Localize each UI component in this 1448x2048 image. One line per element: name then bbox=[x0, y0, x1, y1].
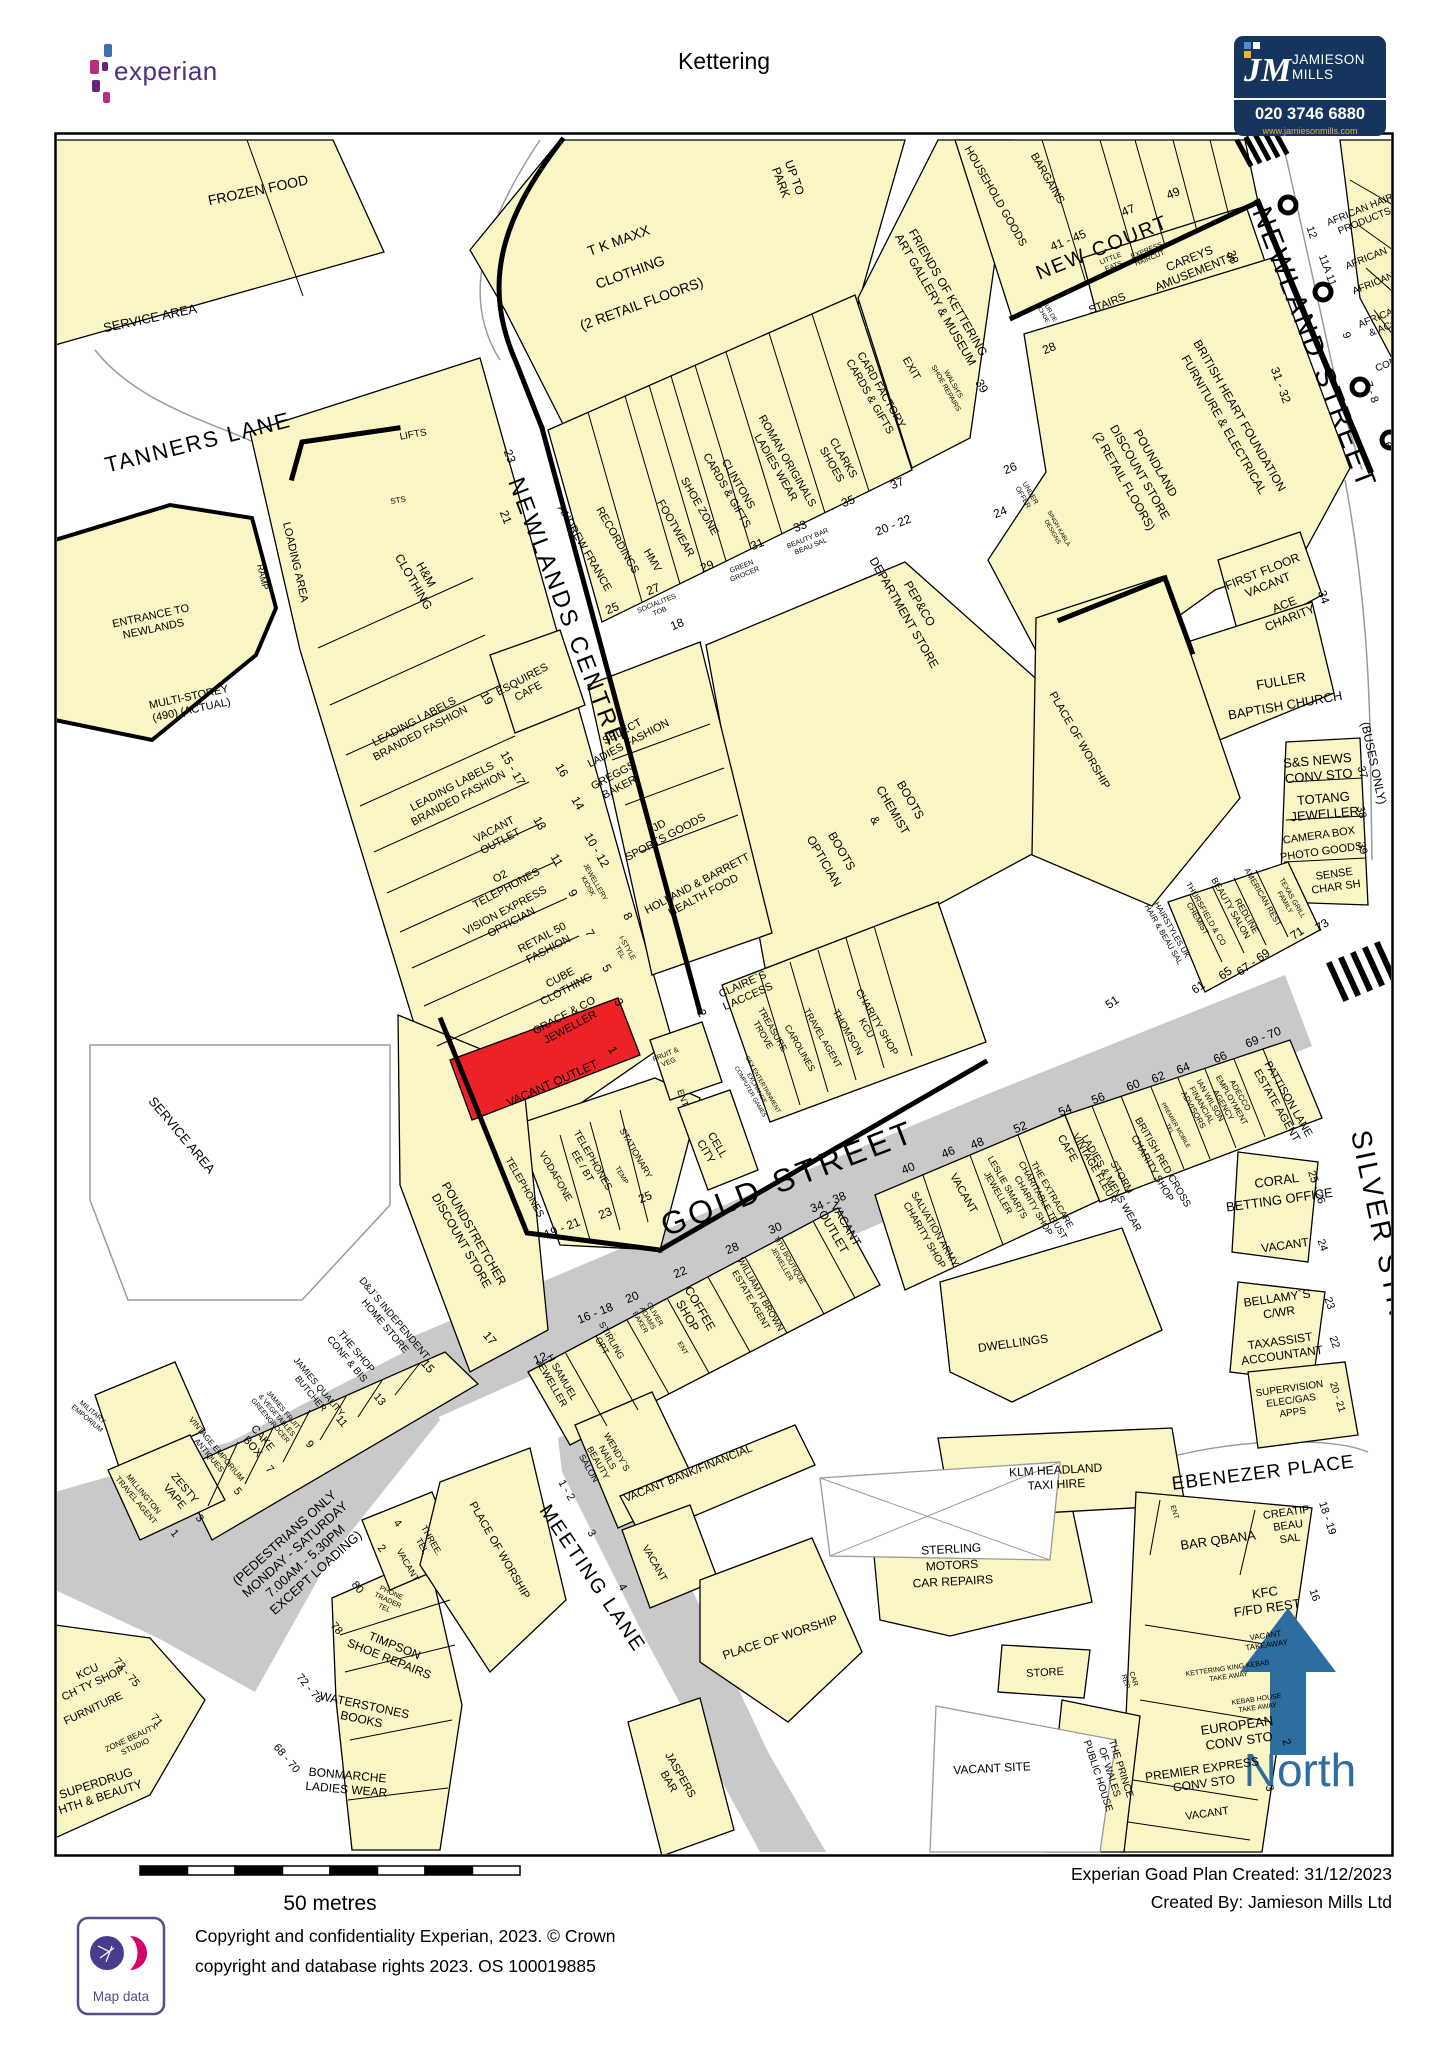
map-label-12: 12 bbox=[1303, 224, 1318, 240]
map-label-24: 24 bbox=[1315, 1238, 1330, 1253]
map-label-23: 23 bbox=[1322, 1296, 1337, 1311]
jamieson-mills-phone: 020 3746 6880 bbox=[1234, 105, 1386, 124]
map-label-green: GREENGROCER bbox=[726, 558, 760, 584]
created-by-label: Created By: Jamieson Mills Ltd bbox=[1151, 1892, 1392, 1912]
map-label-68-70: 68 - 70 bbox=[271, 1742, 302, 1776]
map-label-silver-street: SILVER STREET bbox=[1345, 1127, 1428, 1383]
copyright-line2: copyright and database rights 2023. OS 1… bbox=[195, 1956, 596, 1976]
jamieson-mills-name: JAMIESON MILLS bbox=[1292, 52, 1365, 82]
map-label-9: 9 bbox=[1340, 330, 1353, 340]
map-label-s-s-news: S&S NEWSCONV STO bbox=[1282, 750, 1353, 786]
created-label: Experian Goad Plan Created: 31/12/2023 bbox=[1071, 1864, 1392, 1884]
map-label-conv: CONV bbox=[1374, 353, 1405, 374]
jamieson-mills-website[interactable]: www.jamiesonmills.com bbox=[1234, 126, 1386, 136]
copyright-line1: Copyright and confidentiality Experian, … bbox=[195, 1926, 616, 1946]
map-label-22: 22 bbox=[1327, 1335, 1342, 1350]
map-label-bonmarche: BONMARCHELADIES WEAR bbox=[305, 1764, 390, 1799]
map-label-totang: TOTANGJEWELLER bbox=[1288, 788, 1359, 824]
north-label: North bbox=[1244, 1744, 1356, 1796]
jamieson-mills-monogram: JM bbox=[1244, 52, 1291, 90]
page-header: experian Kettering JM JAMIESON MILLS 020… bbox=[0, 0, 1448, 133]
map-label-ebenezer-place: EBENEZER PLACE bbox=[1171, 1452, 1356, 1495]
map-label-store: STORE bbox=[1026, 1666, 1064, 1680]
map-label-26: 26 bbox=[1001, 459, 1019, 477]
map-label-beauty-bar: BEAUTY BARBEAU SAL bbox=[786, 527, 833, 558]
scale-label: 50 metres bbox=[283, 1892, 376, 1915]
scale-bar bbox=[140, 1866, 520, 1875]
os-map-data-logo: Map data bbox=[78, 1918, 164, 2014]
goad-plan-map: North TANNERS LANENEWLANDS CENTRENEW COU… bbox=[0, 0, 1448, 2048]
svg-text:Map data: Map data bbox=[93, 1989, 150, 2004]
map-label-51: 51 bbox=[1103, 992, 1122, 1011]
map-label-20-22: 20 - 22 bbox=[873, 512, 913, 539]
map-label-18-19: 18 - 19 bbox=[1316, 1500, 1338, 1536]
map-label-2: 2 bbox=[694, 1007, 710, 1020]
map-label-18: 18 bbox=[668, 615, 686, 633]
map-label-16: 16 bbox=[1307, 1588, 1322, 1603]
jamieson-mills-logo: JM JAMIESON MILLS 020 3746 6880 www.jami… bbox=[1234, 36, 1386, 136]
map-label-24: 24 bbox=[991, 503, 1009, 521]
page-title: Kettering bbox=[0, 48, 1448, 75]
